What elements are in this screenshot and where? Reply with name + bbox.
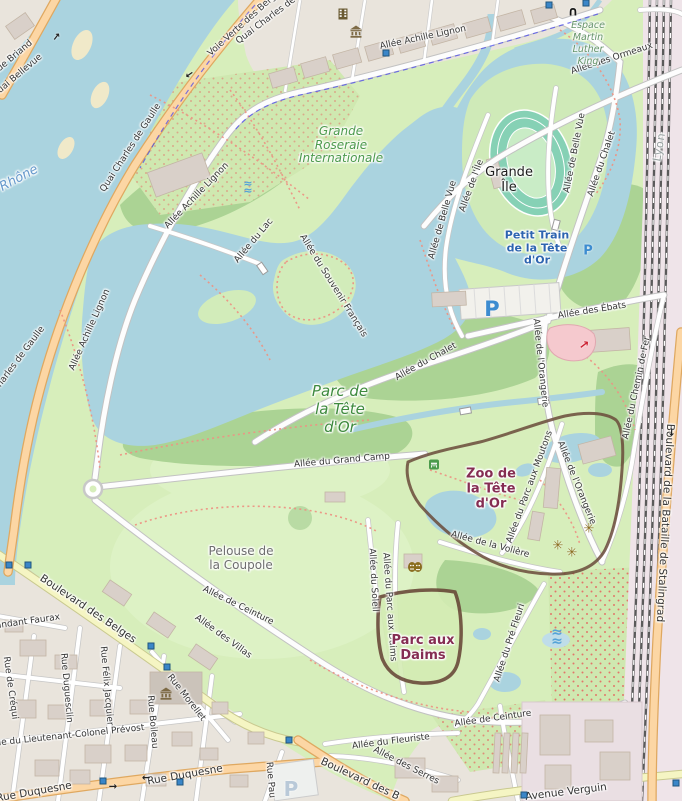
oneway-arrow-1: → — [50, 30, 64, 43]
map-viewport[interactable]: ide Brianduai Bellevuee RhôneQuai Charle… — [0, 0, 682, 801]
picnic-icon — [429, 455, 439, 474]
museum-icon-cite — [349, 24, 364, 43]
museum-icon-city — [159, 686, 174, 705]
transit-stop-7[interactable] — [164, 664, 171, 671]
transit-stop-4[interactable] — [6, 562, 13, 569]
arch-icon: ∩ — [568, 5, 579, 20]
flower-icon-1: ✳ — [553, 539, 564, 554]
transit-stop-9[interactable] — [177, 779, 184, 786]
parking-p-main: P — [484, 297, 499, 321]
transit-stop-11[interactable] — [521, 792, 528, 799]
flower-icon-2: ✳ — [567, 546, 578, 561]
transit-stop-12[interactable] — [673, 780, 680, 787]
transit-stop-5[interactable] — [25, 562, 32, 569]
transit-stop-2[interactable] — [546, 2, 553, 9]
fountain-icon-garden: ≈ ≈ — [551, 628, 563, 645]
transit-stop-1[interactable] — [383, 50, 390, 57]
theatre-masks-icon — [407, 558, 423, 577]
transit-stop-10[interactable] — [286, 737, 293, 744]
oneway-arrow-3: → — [665, 428, 676, 437]
parking-p-small: P — [583, 244, 593, 259]
transit-stop-8[interactable] — [100, 778, 107, 785]
transit-stop-6[interactable] — [148, 643, 155, 650]
icon-layer: ≈ ≈≈ ≈∩↗✳✳✳PPP→→→→→ — [0, 0, 682, 801]
oneway-arrow-5: → — [109, 782, 117, 793]
oneway-arrow-2: → — [182, 67, 195, 81]
transit-stop-3[interactable] — [583, 0, 590, 7]
fountain-icon-lake: ≈ ≈ — [243, 181, 252, 195]
oneway-arrow-4: → — [142, 772, 150, 783]
cinema-icon — [337, 6, 350, 25]
parking-p-pale: P — [284, 777, 299, 801]
slide-arrow-icon: ↗ — [578, 337, 590, 352]
flower-icon-3: ✳ — [584, 522, 595, 537]
